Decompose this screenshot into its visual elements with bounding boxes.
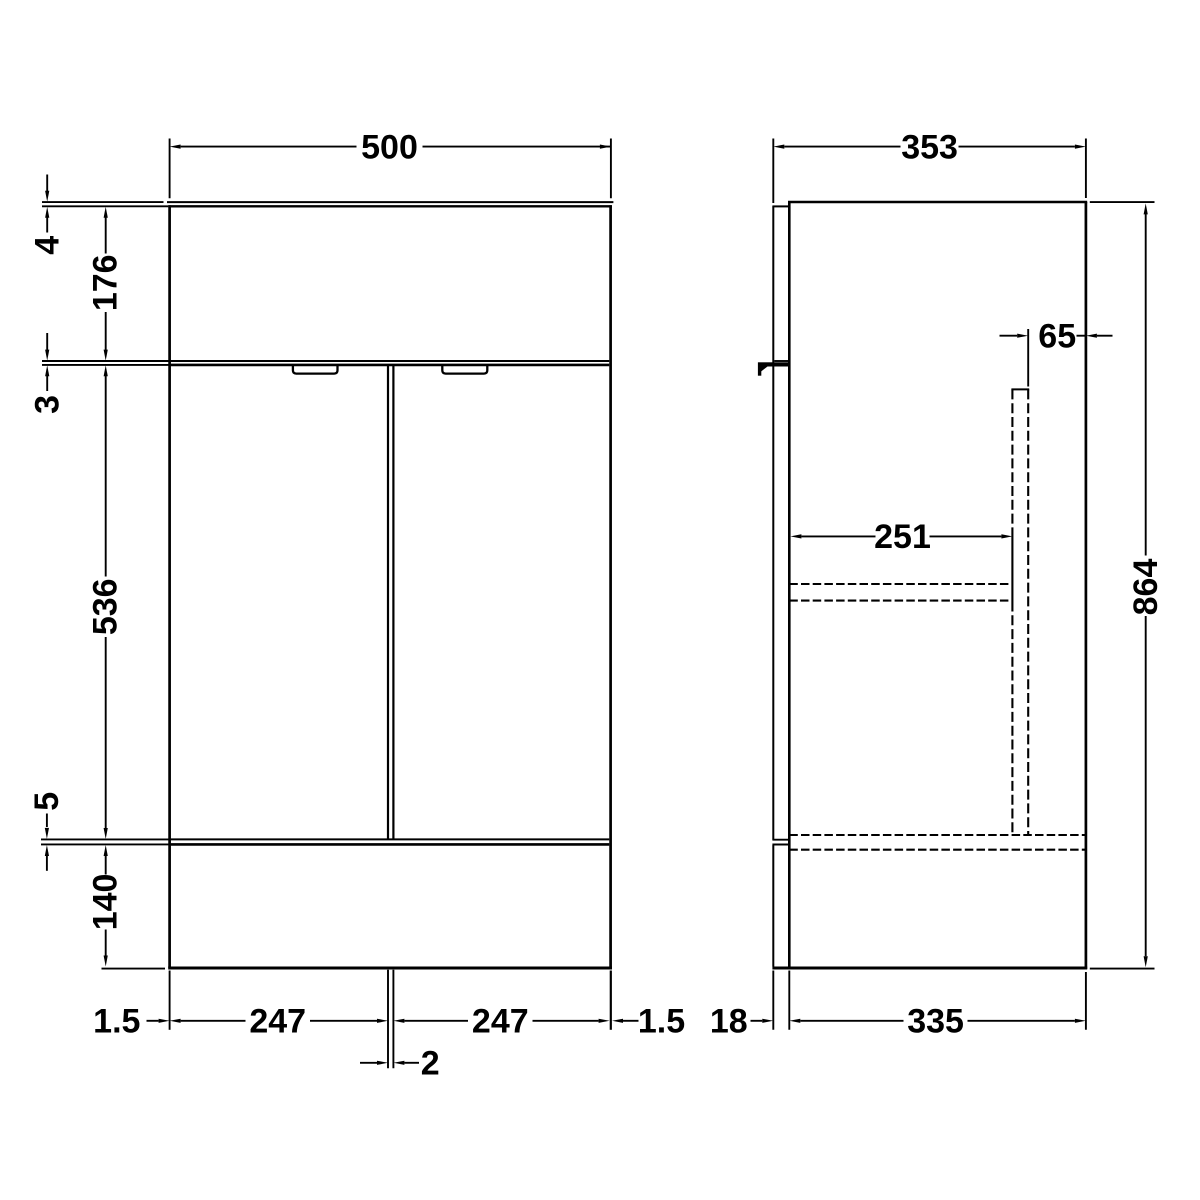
svg-text:176: 176 bbox=[87, 254, 125, 311]
svg-text:140: 140 bbox=[87, 874, 125, 931]
svg-text:1.5: 1.5 bbox=[638, 1003, 685, 1041]
svg-text:500: 500 bbox=[361, 128, 418, 166]
svg-text:247: 247 bbox=[472, 1003, 529, 1041]
svg-text:335: 335 bbox=[907, 1003, 964, 1041]
svg-text:353: 353 bbox=[901, 128, 958, 166]
svg-text:251: 251 bbox=[874, 518, 931, 556]
svg-text:4: 4 bbox=[28, 236, 66, 255]
svg-text:65: 65 bbox=[1038, 318, 1076, 356]
svg-text:247: 247 bbox=[249, 1003, 306, 1041]
svg-text:1.5: 1.5 bbox=[93, 1003, 140, 1041]
svg-text:864: 864 bbox=[1127, 559, 1165, 616]
svg-text:18: 18 bbox=[710, 1003, 748, 1041]
svg-text:536: 536 bbox=[87, 578, 125, 635]
svg-text:5: 5 bbox=[28, 792, 66, 811]
svg-text:3: 3 bbox=[28, 395, 66, 414]
svg-text:2: 2 bbox=[421, 1045, 440, 1083]
